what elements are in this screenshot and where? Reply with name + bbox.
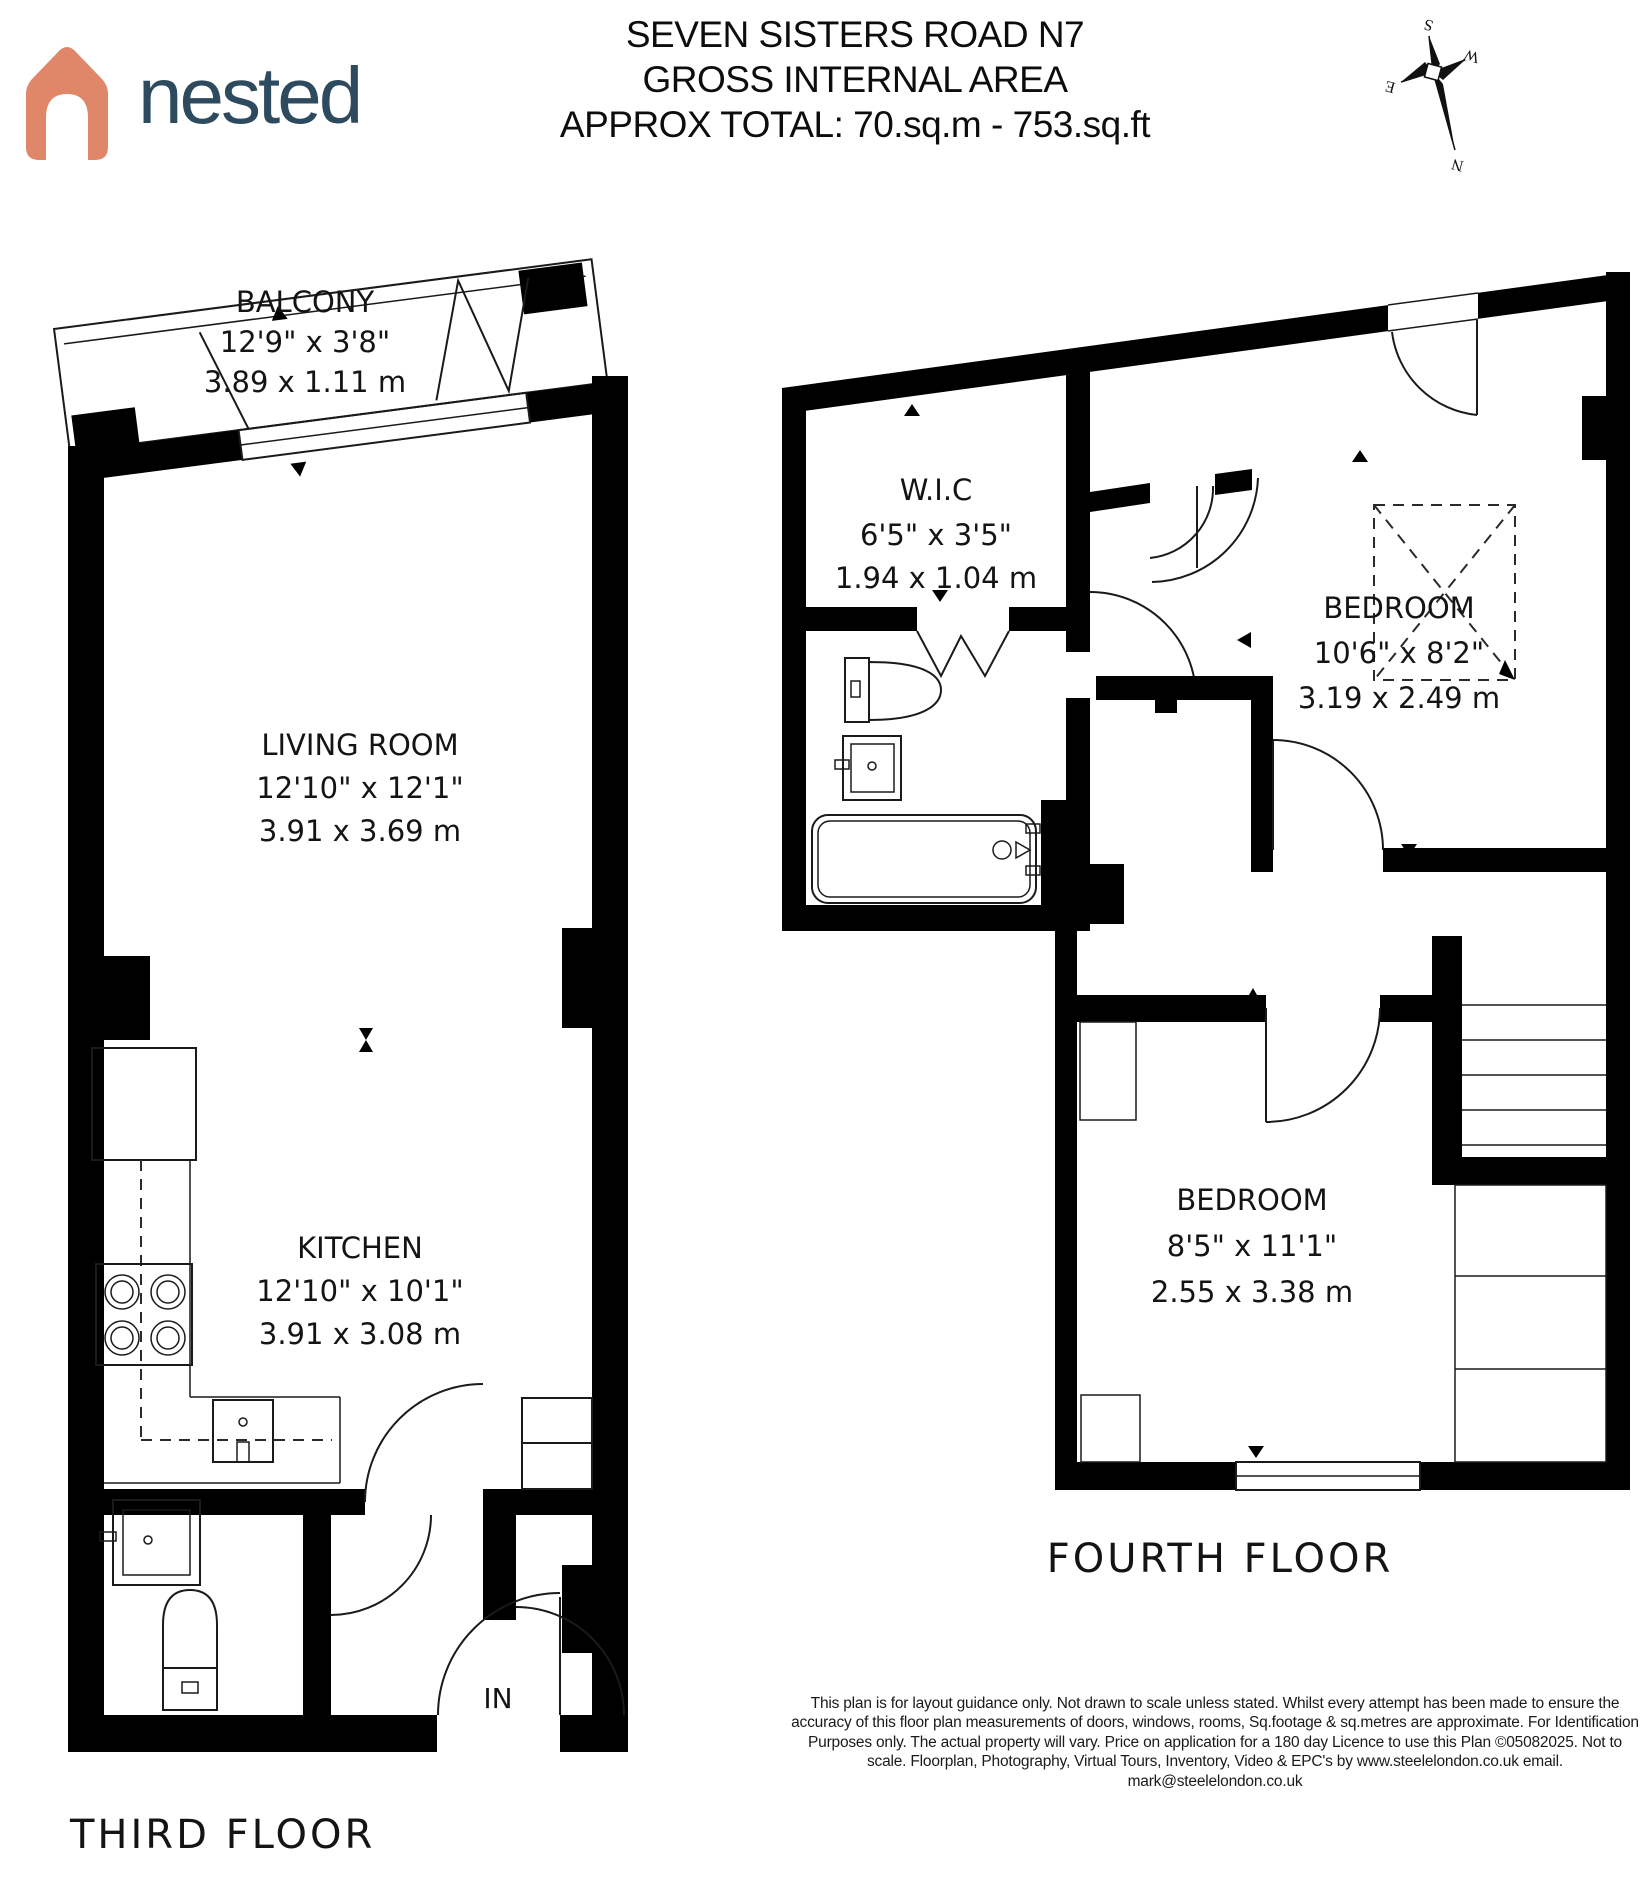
closet [1080,1022,1136,1120]
bedroom-bottom-name: BEDROOM [1176,1183,1327,1217]
fourth-top-wall [782,272,1630,414]
window-marker-icon [1248,1446,1264,1458]
fourth-bottom-wall [1055,1462,1236,1490]
cupboard [522,1398,592,1489]
toilet-icon [163,1590,217,1710]
hob-icon [96,1264,192,1365]
wic-name: W.I.C [900,473,973,507]
third-left-wall [68,446,104,1752]
entrance-label: IN [483,1682,512,1715]
floorplan-page: nested SEVEN SISTERS ROAD N7 GROSS INTER… [0,0,1649,1886]
kitchen-name: KITCHEN [297,1231,423,1265]
kitchen-sink-icon [213,1400,273,1462]
stairs [1432,936,1608,1462]
third-floor-plan: BALCONY 12'9" x 3'8" 3.89 x 1.11 m LIVIN… [54,259,628,1858]
bedroom-bottom-imperial: 8'5" x 11'1" [1167,1229,1337,1263]
fourth-floor-label: FOURTH FLOOR [1047,1536,1394,1582]
kitchen-bath-wall [104,1489,365,1515]
window-marker-icon [1352,450,1368,462]
bedroom-top-name: BEDROOM [1323,591,1474,625]
balcony-wall-right [518,262,587,314]
third-right-wall [592,376,628,1752]
bedroom-bottom-door-arc [1266,1008,1380,1122]
bedroom-top-bottom-wall [1383,848,1630,872]
section-marker-icon [359,1028,373,1052]
wic-imperial: 6'5" x 3'5" [860,518,1012,552]
floorplan-drawing: BALCONY 12'9" x 3'8" 3.89 x 1.11 m LIVIN… [0,0,1649,1886]
closet [1081,1395,1140,1462]
kitchen-door-arc [365,1384,483,1502]
fourth-left-wall [782,400,806,931]
bedroom-bottom-metric: 2.55 x 3.38 m [1151,1275,1353,1309]
kitchen-counter [92,1048,340,1483]
balcony-metric: 3.89 x 1.11 m [204,365,406,399]
hall-door-arc [1150,486,1213,558]
living-room-name: LIVING ROOM [261,728,458,762]
fourth-right-wall [1606,272,1630,1490]
bedroom-top-imperial: 10'6" x 8'2" [1314,636,1484,670]
balcony-name: BALCONY [236,285,375,319]
bath-sink-icon [835,736,901,800]
kitchen-imperial: 12'10" x 10'1" [256,1274,463,1308]
toilet-icon [845,658,941,722]
bathroom-door-arc [331,1515,431,1615]
bedroom-top-door-arc [1392,332,1477,415]
bathtub-icon [812,815,1040,903]
balcony-imperial: 12'9" x 3'8" [220,325,390,359]
kitchen-metric: 3.91 x 3.08 m [259,1317,461,1351]
disclaimer-text: This plan is for layout guidance only. N… [787,1694,1643,1791]
bedroom-bottom-left-wall [1055,924,1077,1490]
window-marker-icon [904,404,920,416]
hall-door-arc [1152,478,1258,582]
window-marker-icon [1237,632,1251,648]
living-room-imperial: 12'10" x 12'1" [256,771,463,805]
living-room-metric: 3.91 x 3.69 m [259,814,461,848]
fourth-floor-plan: W.I.C 6'5" x 3'5" 1.94 x 1.04 m BEDROOM … [782,272,1630,1582]
bedroom-top-inner-door-arc [1273,740,1383,850]
third-floor-label: THIRD FLOOR [69,1812,375,1858]
wic-metric: 1.94 x 1.04 m [835,561,1037,595]
bedroom-top-metric: 3.19 x 2.49 m [1298,681,1500,715]
window-marker-icon [290,462,308,478]
wic-bifold-door [917,631,1009,676]
third-bottom-wall [68,1715,437,1752]
bathroom-wall [303,1515,331,1715]
